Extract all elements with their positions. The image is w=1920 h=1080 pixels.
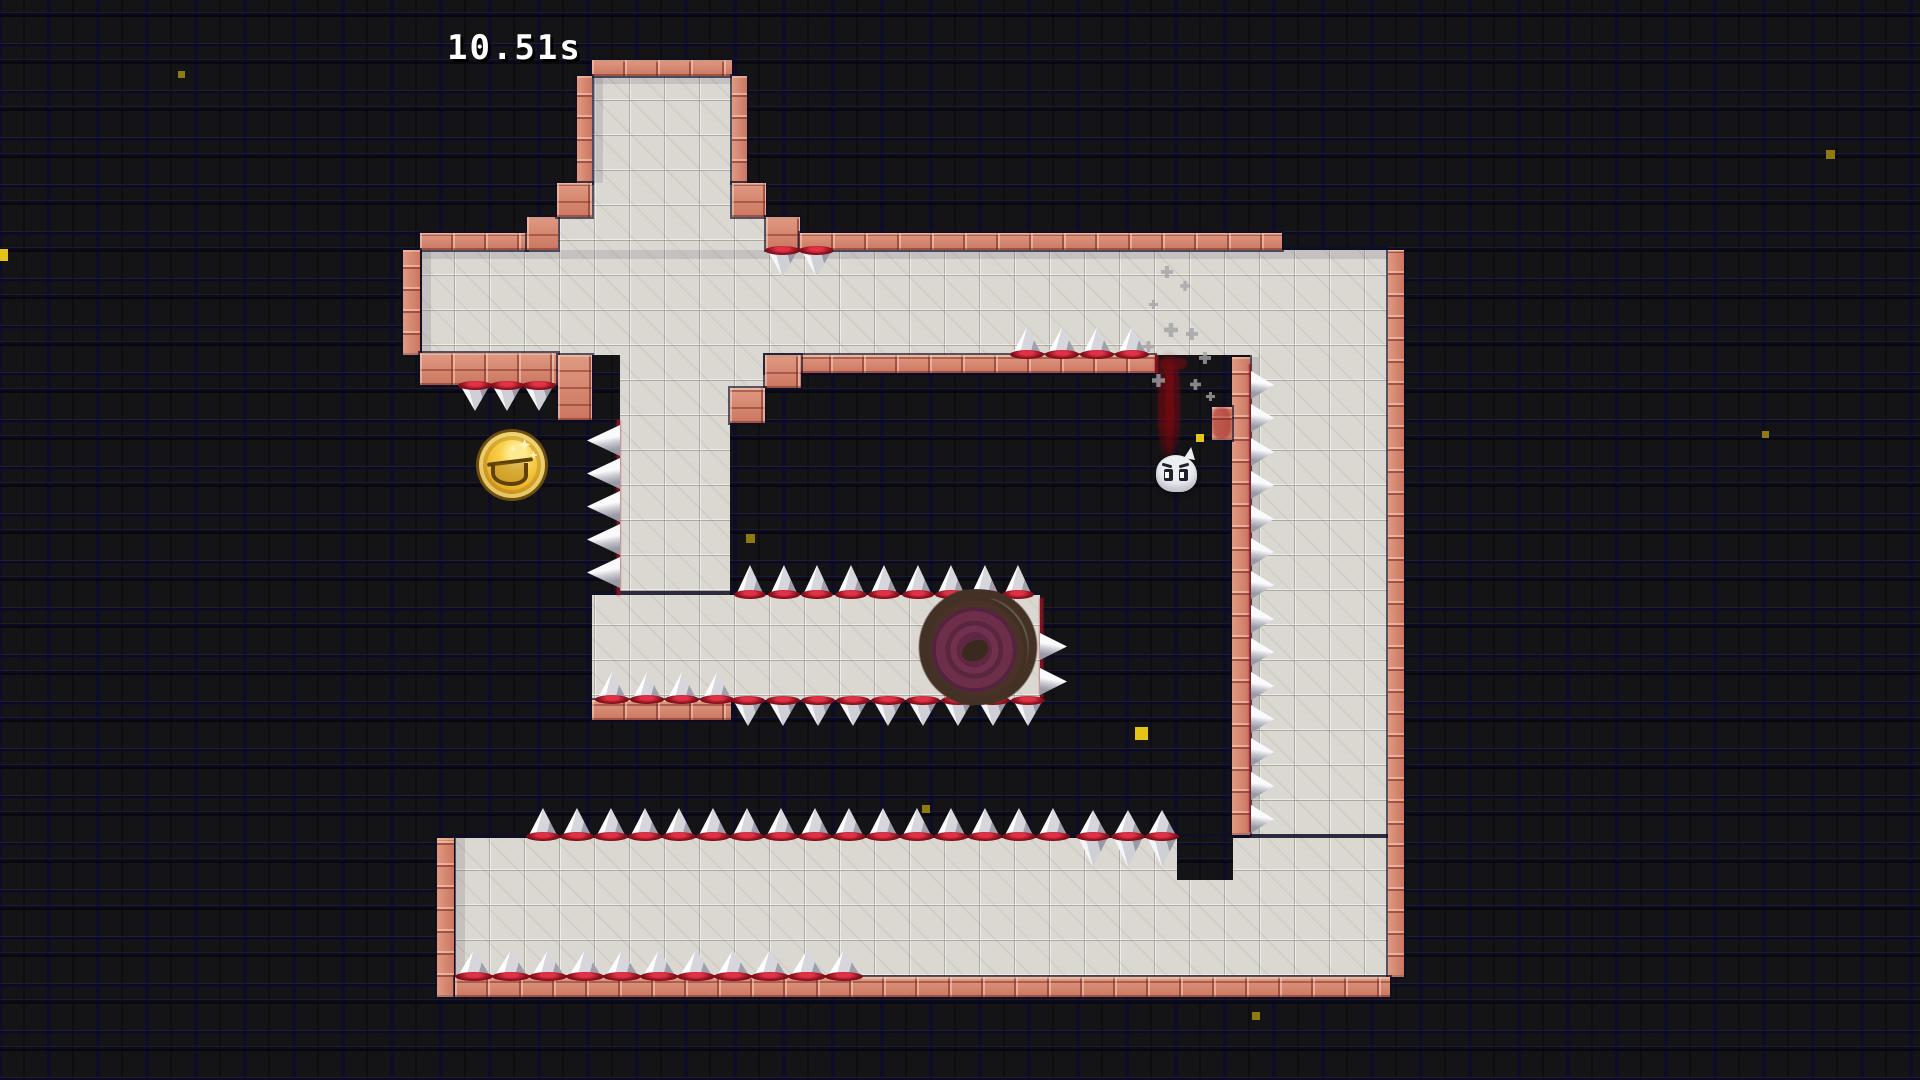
spike-base-ring (801, 696, 835, 705)
dust-particle (1826, 150, 1835, 159)
shadow-band-left (420, 250, 431, 355)
smoke-puff (1206, 392, 1215, 401)
spike-base-ring (1080, 350, 1114, 359)
platform-bottom-band (455, 838, 1390, 977)
brick-inner-wall (1232, 357, 1250, 835)
spike-base-ring (1076, 832, 1110, 841)
spike-base-ring (799, 246, 834, 255)
spike-base-ring (768, 590, 800, 599)
game-stage[interactable]: 10.51s (0, 0, 1920, 1080)
smoke-puff (1190, 379, 1201, 390)
spike-base-ring (522, 381, 556, 390)
spike-base-ring (832, 832, 866, 841)
coin-sparkle (509, 445, 516, 452)
spike-base-ring (906, 696, 940, 705)
dust-particle (178, 71, 185, 78)
brick-band-left-wall (403, 250, 420, 355)
blood-streak (1165, 357, 1174, 457)
spike-base-ring (640, 972, 678, 981)
dust-particle (1252, 1012, 1260, 1020)
spike-base-ring (490, 381, 524, 390)
spike-base-ring (1111, 832, 1145, 841)
spike-base-ring (868, 590, 900, 599)
stub-right-spikes (1040, 633, 1067, 660)
spike-base-ring (934, 832, 968, 841)
ghost-pupil (1165, 472, 1169, 478)
brick-column-left (577, 76, 592, 183)
brick-ceiling-step2 (557, 183, 592, 217)
spike-base-ring (628, 832, 662, 841)
dust-particle (746, 534, 755, 543)
spike-base-ring (595, 695, 629, 704)
brick-ceiling-step3 (732, 183, 766, 217)
shadow-column-top (592, 76, 732, 84)
spike-base-ring (1115, 350, 1149, 359)
spike-base-ring (764, 832, 798, 841)
platform-mid-column (620, 355, 730, 595)
brick-ceiling-step1 (527, 217, 558, 250)
ghost-brow-right (1179, 463, 1189, 469)
dust-particle (1196, 434, 1204, 442)
redline-inner-wall (1249, 364, 1251, 832)
brick-column-top (592, 60, 732, 76)
coin-wall-spikes (587, 557, 620, 588)
spike-base-ring (529, 972, 567, 981)
spike-base-ring (798, 832, 832, 841)
spike-base-ring (968, 832, 1002, 841)
spike-base-ring (866, 832, 900, 841)
shadow-column-left (592, 76, 603, 183)
spike-base-ring (871, 696, 905, 705)
spike-base-ring (1045, 350, 1079, 359)
spike-base-ring (700, 695, 734, 704)
spike-base-ring (594, 832, 628, 841)
wall-protrusion (1177, 837, 1233, 880)
dust-particle (1135, 727, 1148, 740)
dust-particle (1762, 431, 1769, 438)
brick-floor-thick (765, 355, 801, 388)
spike-base-ring (731, 696, 765, 705)
coin-wall-spikes (587, 491, 620, 522)
coin-wall-spikes (587, 524, 620, 555)
brick-bottomband-left-wall (437, 838, 454, 997)
spike-base-ring (1010, 350, 1044, 359)
coin-wall-spikes (587, 425, 620, 456)
spike-base-ring (603, 972, 641, 981)
ghost-ear (1184, 447, 1195, 460)
brick-ceiling-right (800, 233, 1282, 250)
spike-base-ring (492, 972, 530, 981)
spike-base-ring (1011, 696, 1045, 705)
platform-top-band (422, 250, 1388, 355)
spike-base-ring (458, 381, 492, 390)
coin-pickup (479, 432, 545, 498)
spike-base-ring (665, 695, 699, 704)
spike-base-ring (526, 832, 560, 841)
spike-base-ring (566, 972, 604, 981)
spike-base-ring (1002, 832, 1036, 841)
dust-particle (0, 249, 8, 261)
edge-band-top-right (1282, 246, 1388, 250)
redline-floor-gap (1155, 355, 1158, 373)
ghost-brow-left (1162, 463, 1172, 469)
spike-base-ring (751, 972, 789, 981)
brick-block-a (558, 355, 592, 420)
blood-pool (1159, 357, 1187, 370)
ghost-eye-left (1164, 469, 1173, 481)
platform-step-right (732, 217, 766, 250)
spike-base-ring (1036, 832, 1070, 841)
spike-base-ring (455, 972, 493, 981)
spike-base-ring (630, 695, 664, 704)
coin-face-grin (491, 463, 528, 486)
spike-base-ring (902, 590, 934, 599)
spike-base-ring (662, 832, 696, 841)
dust-particle (922, 805, 930, 813)
spike-base-ring (765, 246, 800, 255)
shadow-under-ceiling (422, 250, 1388, 259)
spike-base-ring (696, 832, 730, 841)
spike-base-ring (714, 972, 752, 981)
spike-base-ring (730, 832, 764, 841)
brick-ceiling-left (420, 233, 527, 250)
spike-base-ring (1145, 832, 1179, 841)
portal-swirl (917, 590, 1039, 703)
brick-column-right (732, 76, 747, 183)
timer-display: 10.51s (447, 28, 582, 68)
spike-base-ring (677, 972, 715, 981)
spike-base-ring (801, 590, 833, 599)
spike-base-ring (836, 696, 870, 705)
stub-right-spikes (1040, 668, 1067, 695)
spike-base-ring (835, 590, 867, 599)
ghost-eye-right (1179, 469, 1188, 481)
player-ghost (1156, 455, 1197, 492)
spike-base-ring (766, 696, 800, 705)
spike-base-ring (900, 832, 934, 841)
coin-sparkle (519, 439, 531, 451)
brick-colwall-step (730, 388, 765, 423)
coin-wall-spikes (587, 458, 620, 489)
spike-base-ring (560, 832, 594, 841)
platform-top-column (592, 75, 732, 250)
spike-base-ring (788, 972, 826, 981)
spike-base-ring (734, 590, 766, 599)
ghost-pupil (1180, 472, 1184, 478)
brick-right-wall (1388, 250, 1404, 977)
blood-wall-smear (1212, 407, 1231, 439)
spike-base-ring (825, 972, 863, 981)
shadow-bottomband-left (455, 838, 465, 977)
platform-step-left (558, 217, 592, 250)
